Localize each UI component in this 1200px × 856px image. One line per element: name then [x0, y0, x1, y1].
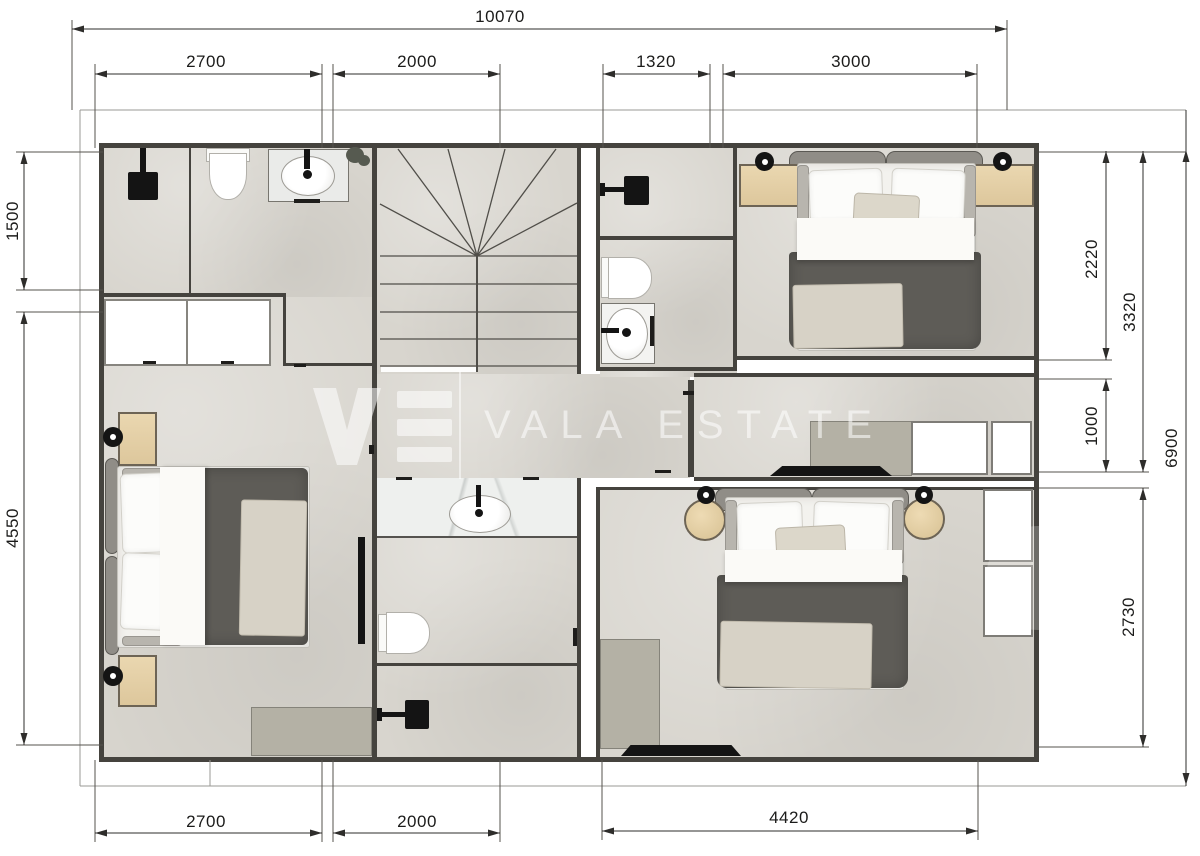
- dimension-label: 3000: [831, 52, 871, 72]
- dimension-label: 4550: [3, 508, 23, 548]
- dimension-label: 4420: [769, 808, 809, 828]
- dimension-label: 2220: [1082, 239, 1102, 279]
- dimension-label: 1000: [1082, 406, 1102, 446]
- dimension-label: 2000: [397, 812, 437, 832]
- floor-plan-canvas: 10070 2700 2000 1320 3000 1500 4550 2220…: [0, 0, 1200, 856]
- dimension-label: 2700: [186, 812, 226, 832]
- dimension-arrows: [21, 26, 1190, 837]
- dimension-lines-layer: [0, 0, 1200, 856]
- boundary-lines: [80, 110, 1186, 786]
- dimension-label: 6900: [1162, 428, 1182, 468]
- dimension-lines: [24, 29, 1186, 833]
- dimension-label: 2700: [186, 52, 226, 72]
- dimension-label: 2730: [1119, 597, 1139, 637]
- dimension-label: 3320: [1120, 292, 1140, 332]
- dimension-label: 1500: [3, 201, 23, 241]
- dimension-label: 2000: [397, 52, 437, 72]
- extension-lines: [16, 20, 1186, 842]
- staircase-treads: [380, 149, 577, 372]
- dimension-label: 1320: [636, 52, 676, 72]
- dimension-label-top-total: 10070: [475, 7, 525, 27]
